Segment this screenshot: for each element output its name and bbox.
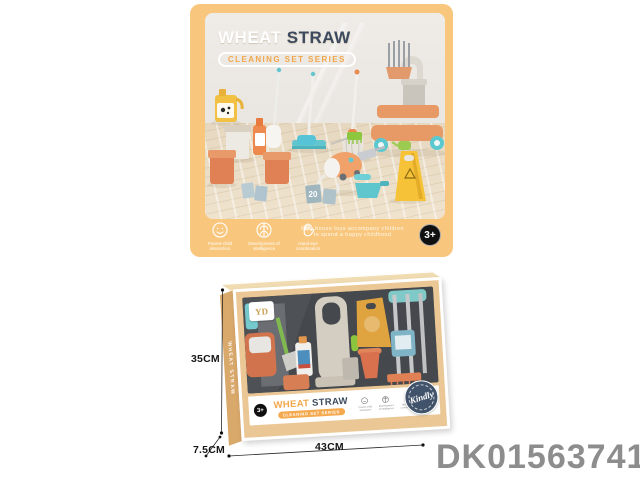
feature-label: Hand-eye coordination bbox=[290, 241, 326, 251]
box-series-logo: WHEAT STRAW CLEANING SET SERIES bbox=[273, 396, 348, 419]
feature-parent-child: Parent-child interaction bbox=[202, 221, 238, 251]
tagline: Play house toys accompany children to sp… bbox=[298, 226, 407, 238]
feature-label: Development of intelligence bbox=[246, 241, 282, 251]
kindly-stamp: Kindly bbox=[403, 379, 439, 415]
feature-intelligence: Development of intelligence bbox=[246, 221, 282, 251]
intelligence-icon bbox=[382, 395, 390, 403]
box-feature-intelligence: Development of intelligence bbox=[378, 395, 395, 411]
product-code: DK01563741 bbox=[436, 438, 640, 477]
detergent-jug bbox=[215, 89, 242, 122]
box-feature-parent-child: Parent-child interaction bbox=[357, 396, 374, 412]
brand-logo: YD bbox=[248, 301, 274, 321]
soap-bar bbox=[297, 135, 316, 145]
title-straw: STRAW bbox=[287, 28, 351, 47]
series-title-text: WHEAT STRAW bbox=[218, 28, 356, 48]
box-front-face: YD 3+ WHEAT STRAW CLEANING SET SERIES Pa… bbox=[233, 277, 451, 441]
cleaner-bottle bbox=[253, 118, 266, 155]
toy-vacuum bbox=[318, 152, 362, 192]
cleaning-cart bbox=[371, 40, 444, 152]
title-wheat: WHEAT bbox=[218, 28, 282, 47]
game-cards bbox=[241, 182, 268, 201]
parent-child-icon bbox=[211, 221, 229, 239]
box-feature-label: Parent-child interaction bbox=[357, 405, 373, 412]
trash-bins bbox=[208, 150, 291, 184]
box-feature-label: Development of intelligence bbox=[378, 404, 394, 411]
intelligence-icon bbox=[255, 221, 273, 239]
watering-can bbox=[392, 141, 411, 150]
number-cards: 20 bbox=[305, 184, 336, 204]
box-age-badge: 3+ bbox=[254, 404, 268, 418]
dustpan-set bbox=[354, 174, 389, 198]
height-dimension-label: 35CM bbox=[191, 353, 220, 365]
product-photo: 20 WHEAT STRAW CLEANING SET SERIES bbox=[205, 13, 445, 219]
box-frame: YD 3+ WHEAT STRAW CLEANING SET SERIES Pa… bbox=[236, 280, 447, 438]
series-subtitle-pill: CLEANING SET SERIES bbox=[218, 52, 356, 67]
age-badge: 3+ bbox=[419, 224, 441, 246]
toilet-brush bbox=[266, 68, 281, 148]
wet-floor-sign bbox=[395, 151, 426, 201]
svg-text:20: 20 bbox=[309, 190, 318, 199]
series-title: WHEAT STRAW CLEANING SET SERIES bbox=[218, 28, 356, 67]
depth-dimension-label: 7.5CM bbox=[193, 444, 225, 456]
package-box: WHEAT STRAW bbox=[233, 277, 451, 441]
parent-child-icon bbox=[361, 396, 369, 404]
box-title-wheat: WHEAT bbox=[273, 398, 309, 411]
feature-label: Parent-child interaction bbox=[202, 241, 238, 251]
kindly-stamp-text: Kindly bbox=[408, 389, 434, 406]
rope-mop bbox=[342, 70, 363, 161]
box-side-text: WHEAT STRAW bbox=[226, 340, 235, 396]
artwork-card: 20 WHEAT STRAW CLEANING SET SERIES bbox=[190, 4, 453, 257]
box-title-straw: STRAW bbox=[312, 396, 348, 409]
width-dimension-label: 43CM bbox=[315, 441, 344, 453]
box-window: YD bbox=[242, 286, 438, 393]
catalog-page: { "colors": { "card_background": "#F8C77… bbox=[0, 0, 640, 480]
